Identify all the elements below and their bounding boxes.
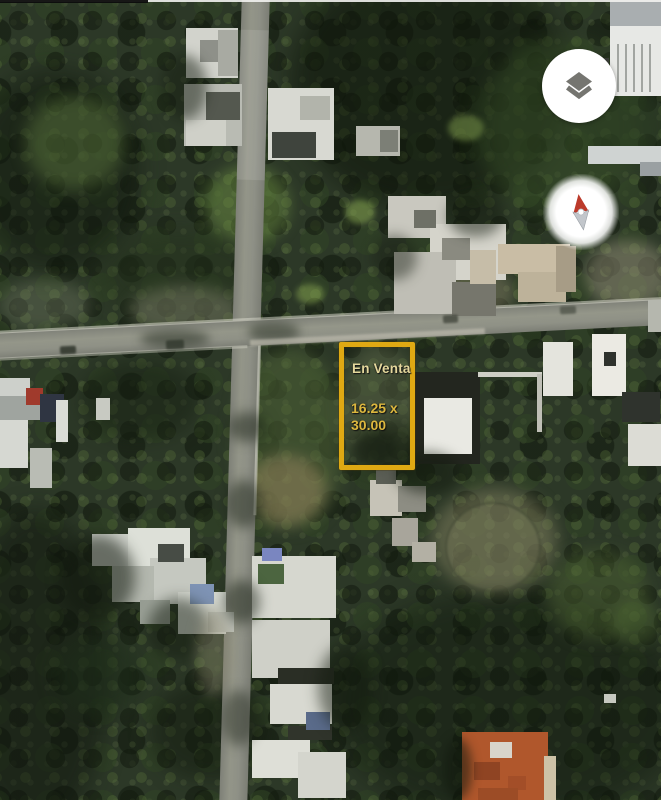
building [470,250,496,284]
building [452,282,496,316]
tree-canopy [318,645,373,730]
building [610,0,661,26]
tree-canopy [60,535,135,620]
terrain-patch [25,95,125,190]
building [633,44,635,92]
building [380,130,398,152]
compass-needle-icon [556,187,606,237]
terrain-patch [345,200,375,224]
building [617,44,619,92]
terrain-patch [55,635,145,715]
layers-icon [560,67,598,105]
tree-canopy [228,412,268,442]
building [158,544,184,562]
tree-canopy [372,235,417,280]
terrain-patch [0,280,90,330]
building [490,742,512,758]
building [478,372,542,377]
building [218,30,238,76]
plot-dims-line2: 30.00 [351,417,398,434]
tree-canopy [448,195,503,237]
tree-canopy [224,580,260,624]
building [414,210,436,228]
building [56,400,68,442]
building [604,694,616,703]
tree-canopy [166,340,184,350]
building [544,756,556,800]
building [556,246,576,292]
building [622,392,660,422]
building [474,762,500,780]
building [537,374,542,432]
layers-button[interactable] [542,49,616,123]
building [412,542,436,562]
building [442,238,470,260]
circular-structure [445,502,541,592]
terrain-patch [448,115,484,141]
building [186,120,226,146]
building [272,132,316,158]
tree-canopy [560,306,576,315]
building [376,470,396,484]
building [96,398,110,420]
building [206,92,240,120]
building [625,44,627,92]
en-venta-plot-outline: En Venta 16.25 x 30.00 [339,342,415,470]
building [648,300,661,332]
plot-label-dimensions: 16.25 x 30.00 [351,400,398,434]
building [478,788,518,800]
tree-canopy [226,480,262,528]
building [649,44,651,92]
building [640,162,661,176]
tree-canopy [610,600,660,646]
terrain-patch [296,284,324,304]
plot-dims-line1: 16.25 x [351,400,398,417]
building [424,398,472,454]
building [641,44,643,92]
building [604,352,616,366]
tree-canopy [196,608,232,696]
building [298,752,346,798]
tree-canopy [443,315,458,324]
tree-canopy [60,346,76,355]
building [30,448,52,488]
building [0,420,28,468]
tree-canopy [162,55,207,120]
building [262,548,282,561]
building [300,96,330,120]
compass-button[interactable] [543,174,619,250]
building [258,564,284,584]
tree-canopy [444,738,472,800]
building [543,342,573,396]
building [628,424,661,466]
building [0,0,148,3]
tree-canopy [222,690,256,746]
satellite-map[interactable]: En Venta 16.25 x 30.00 [0,0,661,800]
plot-label-title: En Venta [352,361,422,376]
